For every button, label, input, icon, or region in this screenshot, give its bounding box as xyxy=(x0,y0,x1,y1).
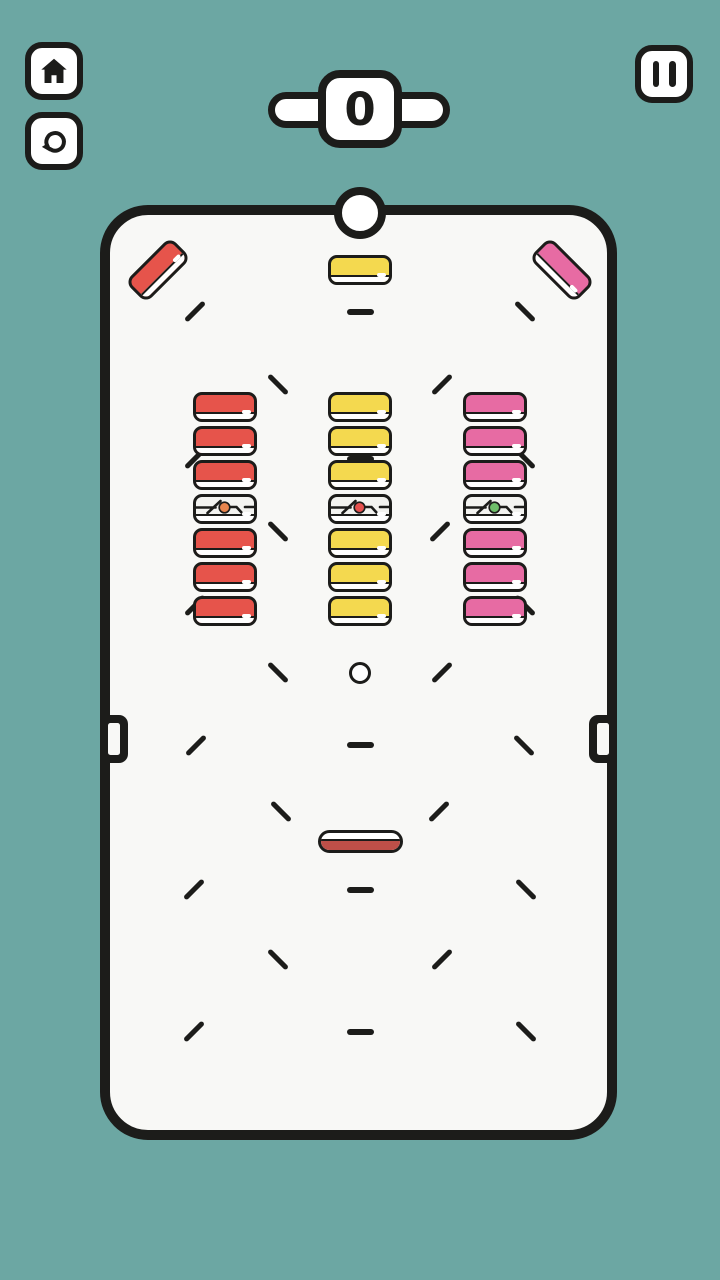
tick-mark xyxy=(429,521,451,543)
brick-highlight xyxy=(512,410,521,414)
tick-mark xyxy=(347,309,374,315)
tick-mark xyxy=(184,301,206,323)
wall-slot-right xyxy=(589,715,617,763)
special-brick xyxy=(463,494,527,524)
tick-mark xyxy=(267,949,289,971)
brick xyxy=(328,255,392,285)
brick-highlight xyxy=(242,546,251,550)
brick-highlight xyxy=(377,273,386,277)
brick xyxy=(193,392,257,422)
tick-mark xyxy=(431,374,453,396)
tick-mark xyxy=(431,662,453,684)
brick-highlight xyxy=(377,410,386,414)
tick-mark xyxy=(431,949,453,971)
brick-highlight xyxy=(377,546,386,550)
brick xyxy=(463,596,527,626)
game-screen: 0 xyxy=(0,0,720,1280)
brick-highlight xyxy=(242,512,251,516)
tick-mark xyxy=(513,735,535,757)
brick-highlight xyxy=(242,444,251,448)
brick xyxy=(463,460,527,490)
tick-mark xyxy=(185,735,207,757)
brick-highlight xyxy=(377,614,386,618)
brick xyxy=(463,528,527,558)
wall-slot-opening xyxy=(108,723,120,755)
game-layer xyxy=(0,0,720,1280)
brick-highlight xyxy=(242,580,251,584)
brick xyxy=(328,392,392,422)
brick xyxy=(463,426,527,456)
brick xyxy=(328,596,392,626)
tick-mark xyxy=(347,1029,374,1035)
brick-base xyxy=(530,252,580,302)
brick-highlight xyxy=(377,478,386,482)
mini-ball xyxy=(349,662,371,684)
brick-base xyxy=(140,252,190,302)
brick xyxy=(193,460,257,490)
brick xyxy=(193,596,257,626)
brick-highlight xyxy=(242,410,251,414)
brick-highlight xyxy=(512,512,521,516)
tick-mark xyxy=(267,374,289,396)
tick-mark xyxy=(515,1021,537,1043)
brick xyxy=(328,562,392,592)
brick xyxy=(463,562,527,592)
special-brick xyxy=(193,494,257,524)
brick xyxy=(193,528,257,558)
brick-highlight xyxy=(512,444,521,448)
paddle[interactable] xyxy=(318,830,403,853)
brick xyxy=(328,460,392,490)
brick-highlight xyxy=(512,580,521,584)
brick xyxy=(193,562,257,592)
tick-mark xyxy=(428,801,450,823)
tick-mark xyxy=(183,879,205,901)
ball xyxy=(334,187,386,239)
brick xyxy=(125,237,191,303)
wall-slot-left xyxy=(100,715,128,763)
brick-highlight xyxy=(242,478,251,482)
tick-mark xyxy=(267,662,289,684)
brick-highlight xyxy=(512,546,521,550)
brick xyxy=(529,237,595,303)
brick-highlight xyxy=(377,580,386,584)
special-brick xyxy=(328,494,392,524)
tick-mark xyxy=(347,887,374,893)
brick-highlight xyxy=(377,444,386,448)
tick-mark xyxy=(270,801,292,823)
brick-highlight xyxy=(377,512,386,516)
tick-mark xyxy=(514,301,536,323)
paddle-fill xyxy=(319,839,402,852)
brick xyxy=(193,426,257,456)
brick-highlight xyxy=(512,614,521,618)
brick-highlight xyxy=(242,614,251,618)
tick-mark xyxy=(267,521,289,543)
brick-highlight xyxy=(512,478,521,482)
wall-slot-opening xyxy=(597,723,609,755)
tick-mark xyxy=(515,879,537,901)
tick-mark xyxy=(183,1021,205,1043)
brick xyxy=(328,528,392,558)
tick-mark xyxy=(347,742,374,748)
brick xyxy=(463,392,527,422)
brick xyxy=(328,426,392,456)
